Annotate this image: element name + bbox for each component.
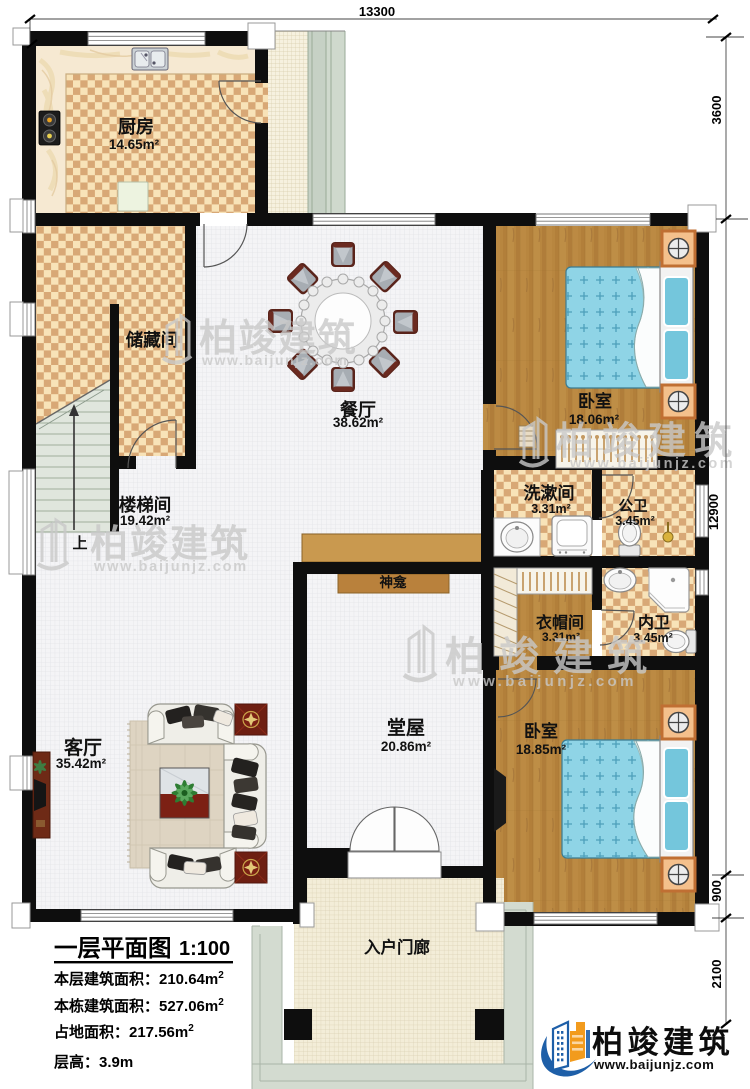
svg-text:900: 900 xyxy=(709,880,724,902)
svg-text:38.62m²: 38.62m² xyxy=(333,415,384,430)
svg-text:储藏间: 储藏间 xyxy=(126,330,179,350)
svg-text:20.86m²: 20.86m² xyxy=(381,739,432,754)
svg-text:www.baijunjz.com: www.baijunjz.com xyxy=(569,456,735,472)
svg-text:楼梯间: 楼梯间 xyxy=(119,495,172,515)
svg-text:柏竣建筑: 柏竣建筑 xyxy=(592,1025,734,1060)
svg-text:3.31m²: 3.31m² xyxy=(531,502,571,516)
svg-text:卧室: 卧室 xyxy=(524,721,558,741)
svg-text:入户门廊: 入户门廊 xyxy=(364,937,430,957)
svg-text:公卫: 公卫 xyxy=(619,498,648,515)
svg-text:本栋建筑面积：527.06m2: 本栋建筑面积：527.06m2 xyxy=(54,997,224,1015)
svg-text:1:100: 1:100 xyxy=(179,938,230,960)
svg-text:堂屋: 堂屋 xyxy=(387,717,425,739)
svg-text:14.65m²: 14.65m² xyxy=(109,137,160,152)
svg-text:3.45m²: 3.45m² xyxy=(615,514,655,528)
svg-text:12900: 12900 xyxy=(706,494,721,530)
svg-text:内卫: 内卫 xyxy=(638,613,670,632)
svg-text:2100: 2100 xyxy=(709,960,724,989)
svg-text:www.baijunjz.com: www.baijunjz.com xyxy=(593,1057,714,1072)
svg-text:占地面积：217.56m2: 占地面积：217.56m2 xyxy=(54,1023,194,1041)
svg-text:www.baijunjz.com: www.baijunjz.com xyxy=(93,559,248,575)
svg-text:卧室: 卧室 xyxy=(578,391,612,411)
svg-text:一层平面图: 一层平面图 xyxy=(54,935,172,961)
svg-text:上: 上 xyxy=(72,535,87,552)
svg-text:3600: 3600 xyxy=(709,96,724,125)
svg-text:www.baijunjz.com: www.baijunjz.com xyxy=(201,352,348,368)
svg-text:神龛: 神龛 xyxy=(380,574,407,590)
svg-text:www.baijunjz.com: www.baijunjz.com xyxy=(452,673,637,690)
svg-text:35.42m²: 35.42m² xyxy=(56,756,107,771)
svg-text:本层建筑面积：210.64m2: 本层建筑面积：210.64m2 xyxy=(54,970,224,988)
svg-text:13300: 13300 xyxy=(359,4,395,19)
svg-text:洗漱间: 洗漱间 xyxy=(524,483,575,503)
svg-text:18.85m²: 18.85m² xyxy=(516,742,567,757)
svg-text:厨房: 厨房 xyxy=(118,116,154,137)
svg-text:层高：3.9m: 层高：3.9m xyxy=(54,1053,133,1071)
